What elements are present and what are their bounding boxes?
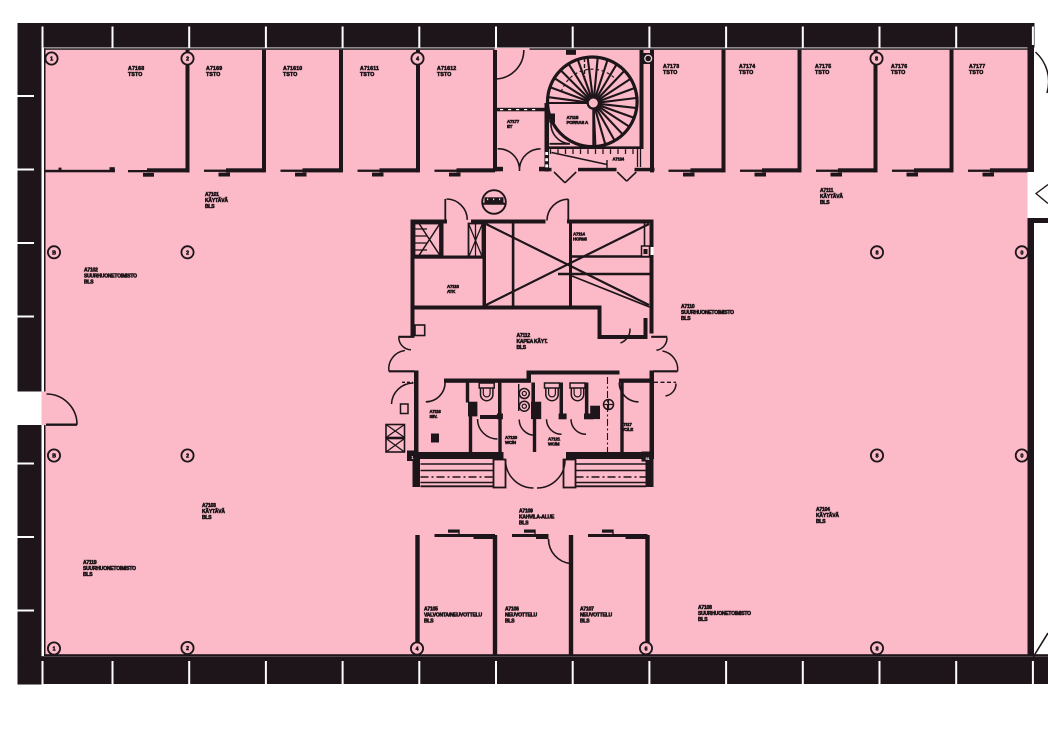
- svg-text:WC/LE: WC/LE: [621, 427, 634, 432]
- svg-text:2: 2: [186, 250, 189, 256]
- svg-text:4: 4: [416, 647, 419, 653]
- svg-text:2: 2: [186, 454, 189, 460]
- svg-text:BLS: BLS: [519, 520, 529, 526]
- svg-text:TSTO: TSTO: [360, 72, 375, 78]
- svg-text:ET: ET: [507, 124, 513, 129]
- svg-text:BLS: BLS: [698, 617, 708, 623]
- svg-text:TSTO: TSTO: [739, 70, 754, 76]
- svg-text:8: 8: [876, 646, 879, 652]
- svg-text:BLS: BLS: [517, 345, 527, 351]
- svg-text:WC/M: WC/M: [548, 441, 560, 446]
- svg-text:2: 2: [186, 646, 189, 652]
- svg-text:A7124: A7124: [613, 157, 625, 162]
- svg-text:8: 8: [876, 250, 879, 256]
- svg-text:PORRAS A: PORRAS A: [567, 120, 589, 125]
- svg-text:BLS: BLS: [505, 618, 515, 624]
- svg-text:0: 0: [1020, 454, 1023, 460]
- svg-text:BLS: BLS: [83, 572, 93, 578]
- svg-text:BLS: BLS: [820, 200, 830, 206]
- svg-text:TSTO: TSTO: [206, 72, 221, 78]
- svg-text:TSTO: TSTO: [663, 70, 678, 76]
- svg-text:WC/N: WC/N: [505, 440, 516, 445]
- svg-text:TSTO: TSTO: [815, 70, 830, 76]
- svg-text:ATK: ATK: [447, 289, 456, 294]
- svg-text:BLS: BLS: [681, 316, 691, 322]
- svg-text:HORMI: HORMI: [573, 236, 587, 241]
- svg-text:TSTO: TSTO: [437, 72, 452, 78]
- svg-text:B: B: [52, 250, 56, 256]
- svg-text:8: 8: [875, 57, 878, 63]
- svg-text:TSTO: TSTO: [128, 72, 143, 78]
- svg-text:BLS: BLS: [205, 204, 215, 210]
- svg-text:BLS: BLS: [580, 618, 590, 624]
- svg-text:B: B: [52, 454, 56, 460]
- svg-text:6: 6: [645, 646, 648, 652]
- svg-text:BLS: BLS: [424, 618, 434, 624]
- svg-text:8: 8: [876, 454, 879, 460]
- svg-text:1: 1: [53, 647, 56, 653]
- svg-text:TSTO: TSTO: [891, 70, 906, 76]
- svg-text:0: 0: [1020, 250, 1023, 256]
- svg-text:TSTO: TSTO: [283, 72, 298, 78]
- svg-text:1: 1: [50, 57, 53, 63]
- svg-text:BLS: BLS: [84, 279, 94, 285]
- svg-text:2: 2: [186, 57, 189, 63]
- svg-text:BLS: BLS: [202, 515, 212, 521]
- svg-text:SIIV.: SIIV.: [430, 414, 438, 419]
- svg-text:BLS: BLS: [816, 519, 826, 525]
- svg-text:TSTO: TSTO: [969, 70, 984, 76]
- svg-text:4: 4: [416, 57, 419, 63]
